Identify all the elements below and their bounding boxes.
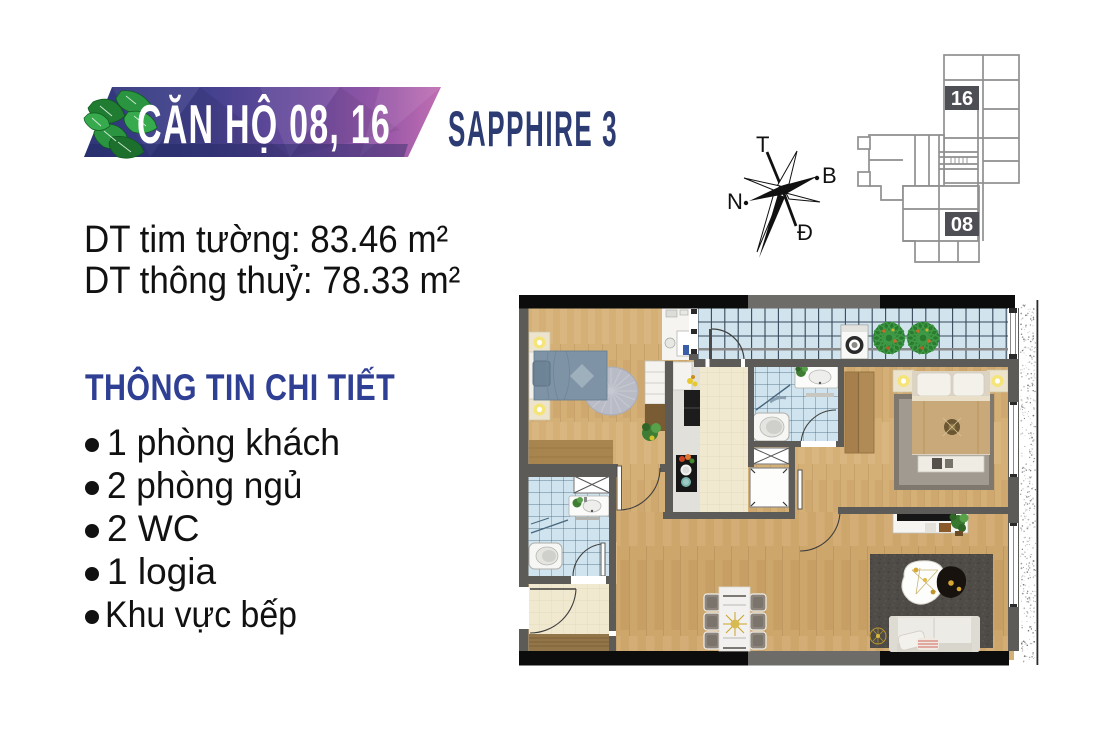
svg-text:2 phòng ngủ: 2 phòng ngủ	[107, 464, 302, 506]
svg-text:16: 16	[951, 88, 973, 110]
svg-text:THÔNG TIN CHI TIẾT: THÔNG TIN CHI TIẾT	[85, 366, 395, 409]
svg-text:CĂN HỘ 08, 16: CĂN HỘ 08, 16	[137, 92, 391, 155]
svg-text:B: B	[822, 163, 837, 188]
svg-text:2 WC: 2 WC	[107, 508, 200, 549]
svg-text:1 phòng khách: 1 phòng khách	[107, 421, 340, 463]
svg-text:DT thông thuỷ: 78.33 m²: DT thông thuỷ: 78.33 m²	[84, 259, 460, 302]
svg-text:N: N	[727, 189, 743, 214]
svg-text:Đ: Đ	[797, 220, 813, 245]
svg-text:1 logia: 1 logia	[107, 551, 216, 592]
svg-text:08: 08	[951, 214, 973, 236]
svg-text:SAPPHIRE 3: SAPPHIRE 3	[448, 102, 618, 157]
svg-text:DT tim tường: 83.46 m²: DT tim tường: 83.46 m²	[84, 218, 448, 261]
svg-text:Khu vực bếp: Khu vực bếp	[105, 594, 297, 636]
